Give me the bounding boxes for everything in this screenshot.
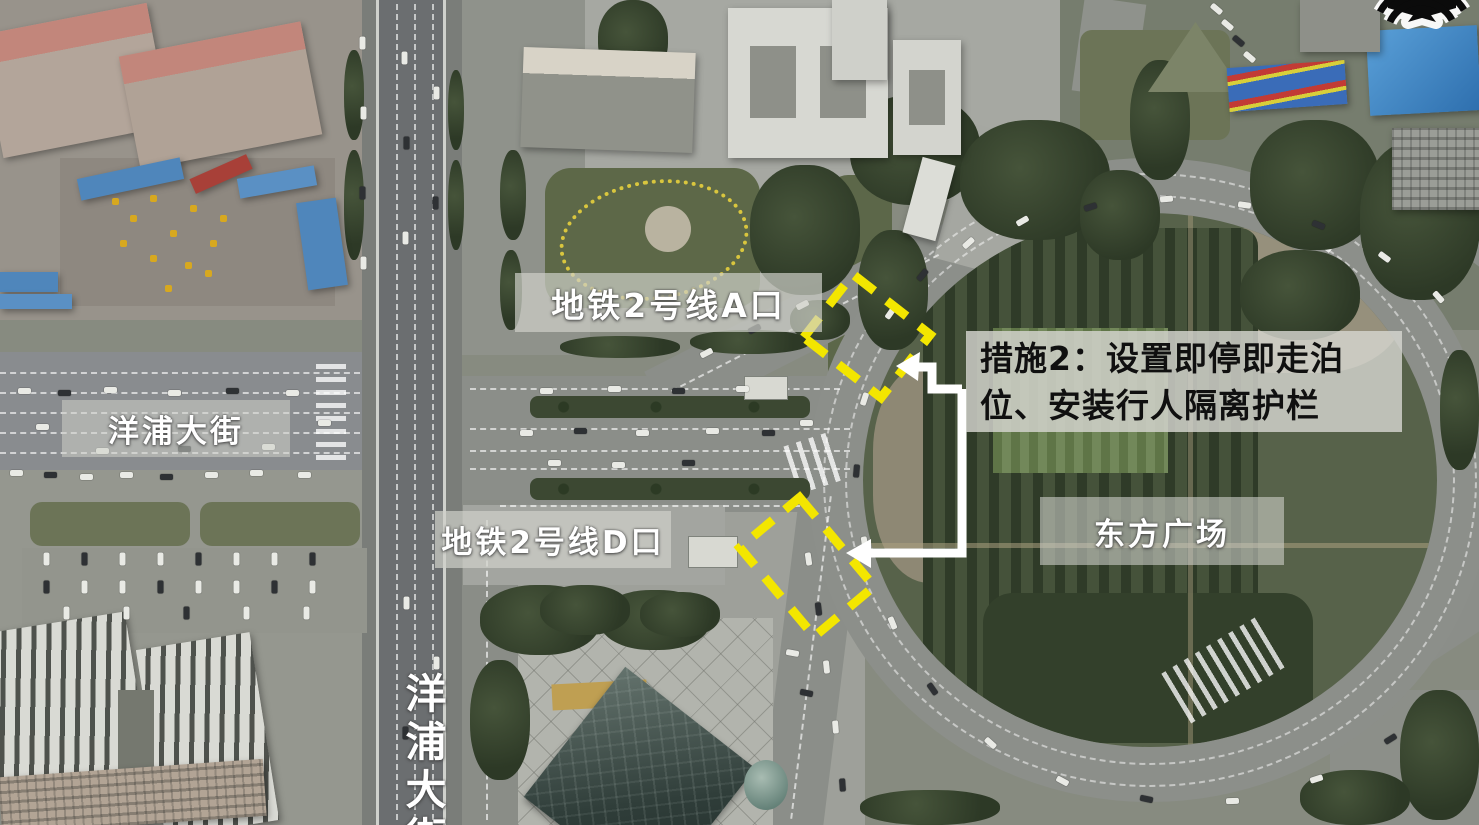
label-yangpu-street: 洋浦大街 (62, 400, 290, 457)
aerial-map: 地铁2号线A口 洋浦大街 地铁2号线D口 东方广场 措施2：设置即停即走泊 位、… (0, 0, 1479, 825)
label-measure-2: 措施2：设置即停即走泊 位、安装行人隔离护栏 (966, 331, 1402, 432)
measure-line-2: 位、安装行人隔离护栏 (980, 383, 1388, 430)
measure-line-1: 措施2：设置即停即走泊 (980, 336, 1388, 383)
label-metro-exit-a: 地铁2号线A口 (515, 273, 822, 332)
label-yangpu-street-vertical: 洋浦大街 (392, 672, 452, 825)
label-dongfang-plaza: 东方广场 (1040, 497, 1284, 565)
highlight-box-exit-d (740, 498, 874, 637)
highlight-box-exit-a (804, 274, 930, 397)
label-metro-exit-d: 地铁2号线D口 (435, 511, 671, 568)
compass-icon (1352, 0, 1479, 88)
